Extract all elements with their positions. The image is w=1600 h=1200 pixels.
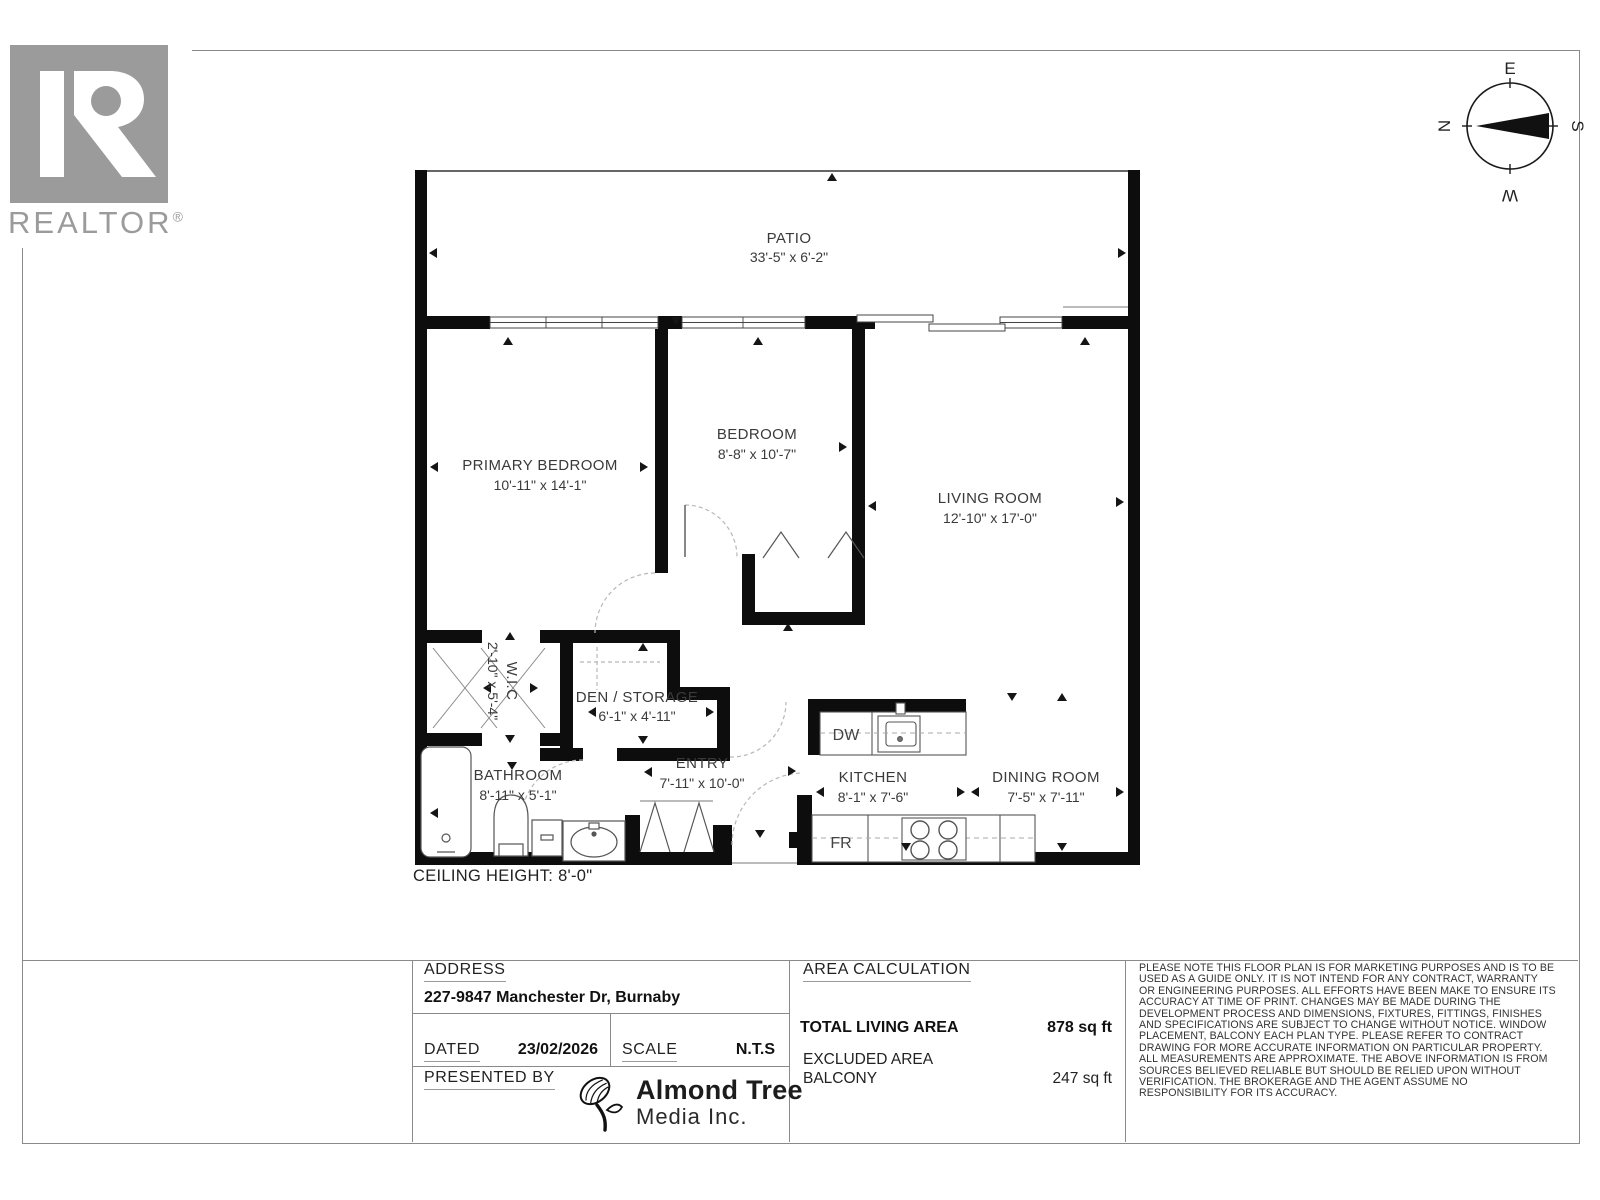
room-label-dining: DINING ROOM 7'-5" x 7'-11" xyxy=(992,769,1100,805)
svg-text:DEN / STORAGE: DEN / STORAGE xyxy=(576,689,698,706)
svg-text:8'-1" x 7'-6": 8'-1" x 7'-6" xyxy=(838,789,909,805)
registered-mark: ® xyxy=(173,209,186,225)
realtor-wordmark: REALTOR® xyxy=(8,205,186,241)
svg-text:6'-1" x 4'-11": 6'-1" x 4'-11" xyxy=(598,708,675,724)
presented-by-label: PRESENTED BY xyxy=(424,1069,555,1090)
bathroom-fixtures xyxy=(421,747,625,861)
svg-text:BEDROOM: BEDROOM xyxy=(717,426,797,443)
address-value: 227-9847 Manchester Dr, Burnaby xyxy=(424,989,680,1007)
svg-text:12'-10" x 17'-0": 12'-10" x 17'-0" xyxy=(943,510,1037,526)
compass-east-label: E xyxy=(1504,59,1515,78)
compass-rose-icon: E N S W xyxy=(1435,59,1587,205)
address-label: ADDRESS xyxy=(424,961,506,982)
disclaimer-text: PLEASE NOTE THIS FLOOR PLAN IS FOR MARKE… xyxy=(1139,963,1579,1100)
floor-plan-page: E N S W xyxy=(0,0,1600,1200)
svg-text:DINING ROOM: DINING ROOM xyxy=(992,769,1100,786)
windows xyxy=(490,315,1062,331)
dishwasher-label: DW xyxy=(833,727,861,744)
excluded-area-label: EXCLUDED AREA xyxy=(803,1051,933,1069)
room-label-wic: W.I.C 2'-10" x 5'-4" xyxy=(485,642,520,720)
svg-text:BATHROOM: BATHROOM xyxy=(474,767,563,784)
realtor-logo: REALTOR® xyxy=(0,30,192,248)
total-living-row: TOTAL LIVING AREA 878 sq ft xyxy=(800,1019,1112,1037)
svg-text:W.I.C: W.I.C xyxy=(503,662,520,701)
scale-label: SCALE xyxy=(622,1041,677,1062)
almond-sprout-icon xyxy=(578,1072,630,1132)
almond-line2: Media Inc. xyxy=(636,1105,803,1128)
dated-value: 23/02/2026 xyxy=(460,1041,598,1059)
svg-text:8'-8" x 10'-7": 8'-8" x 10'-7" xyxy=(718,446,796,462)
scale-value: N.T.S xyxy=(680,1041,775,1059)
svg-text:LIVING ROOM: LIVING ROOM xyxy=(938,490,1042,507)
ceiling-height-note: CEILING HEIGHT: 8'-0" xyxy=(413,867,592,886)
almond-line1: Almond Tree xyxy=(636,1076,803,1104)
compass-south-label: S xyxy=(1568,120,1587,131)
svg-text:PATIO: PATIO xyxy=(767,230,812,247)
svg-text:ENTRY: ENTRY xyxy=(676,755,729,772)
svg-text:7'-5" x 7'-11": 7'-5" x 7'-11" xyxy=(1007,789,1084,805)
svg-text:10'-11" x 14'-1": 10'-11" x 14'-1" xyxy=(494,477,587,493)
svg-text:33'-5" x 6'-2": 33'-5" x 6'-2" xyxy=(750,249,828,265)
area-calculation-label: AREA CALCULATION xyxy=(803,961,971,982)
room-label-kitchen: KITCHEN 8'-1" x 7'-6" xyxy=(838,769,909,805)
compass-needle-icon xyxy=(1476,113,1549,139)
room-label-bathroom: BATHROOM 8'-11" x 5'-1" xyxy=(474,767,563,803)
balcony-value: 247 sq ft xyxy=(1053,1070,1112,1088)
compass-west-label: W xyxy=(1502,186,1518,205)
room-label-den: DEN / STORAGE 6'-1" x 4'-11" xyxy=(576,689,698,724)
bathtub xyxy=(421,747,471,857)
balcony-label: BALCONY xyxy=(800,1070,877,1088)
svg-text:2'-10" x 5'-4": 2'-10" x 5'-4" xyxy=(485,642,501,720)
room-label-bedroom: BEDROOM 8'-8" x 10'-7" xyxy=(717,426,797,462)
room-label-primary-bedroom: PRIMARY BEDROOM 10'-11" x 14'-1" xyxy=(462,457,617,493)
room-label-patio: PATIO 33'-5" x 6'-2" xyxy=(750,230,828,265)
almond-tree-logo: Almond Tree Media Inc. xyxy=(578,1072,803,1132)
realtor-r-icon xyxy=(10,45,168,203)
balcony-row: BALCONY 247 sq ft xyxy=(800,1070,1112,1088)
svg-text:PRIMARY BEDROOM: PRIMARY BEDROOM xyxy=(462,457,617,474)
room-label-living-room: LIVING ROOM 12'-10" x 17'-0" xyxy=(938,490,1042,526)
total-living-label: TOTAL LIVING AREA xyxy=(800,1019,959,1037)
svg-text:KITCHEN: KITCHEN xyxy=(839,769,908,786)
compass-north-label: N xyxy=(1435,120,1454,132)
total-living-value: 878 sq ft xyxy=(1047,1019,1112,1037)
svg-text:8'-11" x 5'-1": 8'-11" x 5'-1" xyxy=(479,787,556,803)
fridge-label: FR xyxy=(830,835,851,852)
svg-text:7'-11" x 10'-0": 7'-11" x 10'-0" xyxy=(659,775,744,791)
